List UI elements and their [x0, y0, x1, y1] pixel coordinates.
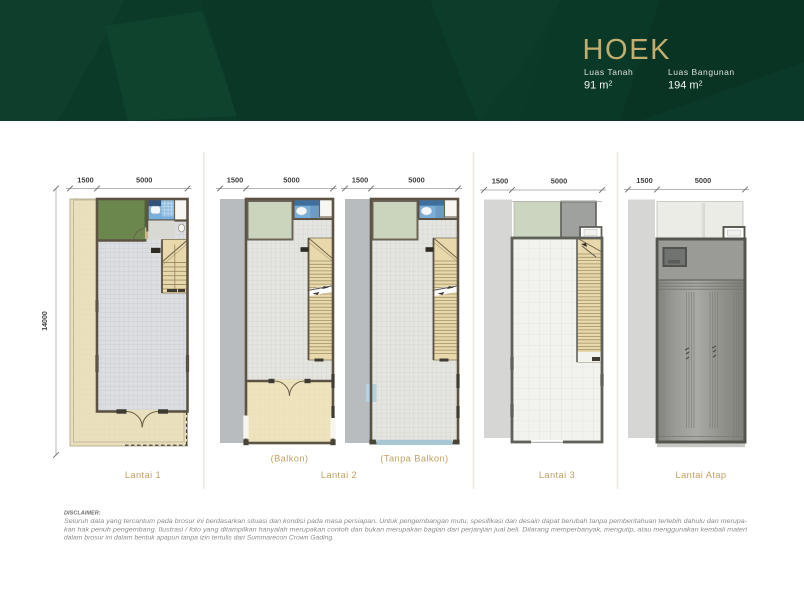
- svg-text:Lantai 2: Lantai 2: [321, 470, 357, 480]
- svg-text:1500: 1500: [492, 177, 508, 186]
- svg-text:Lantai 3: Lantai 3: [539, 470, 575, 480]
- svg-text:5000: 5000: [283, 176, 299, 185]
- svg-text:dalam brosur ini dalam bentuk: dalam brosur ini dalam bentuk apapun tan…: [64, 535, 334, 542]
- svg-text:91 m2: 91 m2: [584, 80, 612, 92]
- svg-text:1500: 1500: [352, 176, 368, 185]
- svg-text:5000: 5000: [136, 176, 152, 185]
- svg-text:194 m2: 194 m2: [668, 80, 703, 92]
- svg-text:Luas Tanah: Luas Tanah: [584, 67, 633, 77]
- svg-text:1500: 1500: [227, 176, 243, 185]
- svg-text:Lantai Atap: Lantai Atap: [676, 470, 727, 480]
- svg-text:HOEK: HOEK: [583, 34, 672, 66]
- svg-text:Seluruh data yang tercantum pa: Seluruh data yang tercantum pada brosur …: [64, 518, 748, 525]
- svg-text:1500: 1500: [636, 176, 652, 185]
- svg-text:DISCLAIMER:: DISCLAIMER:: [64, 511, 101, 517]
- svg-text:kan hak penuh pengembang. Ilus: kan hak penuh pengembang. Ilustrasi / fo…: [64, 526, 748, 533]
- svg-text:14000: 14000: [42, 311, 49, 331]
- svg-text:Lantai 1: Lantai 1: [125, 470, 161, 480]
- svg-text:5000: 5000: [695, 176, 711, 185]
- svg-text:Luas Bangunan: Luas Bangunan: [668, 67, 735, 77]
- svg-text:1500: 1500: [77, 176, 93, 185]
- svg-text:5000: 5000: [551, 177, 567, 186]
- svg-text:5000: 5000: [408, 176, 424, 185]
- svg-text:(Balkon): (Balkon): [271, 454, 309, 464]
- svg-text:(Tanpa Balkon): (Tanpa Balkon): [380, 454, 448, 464]
